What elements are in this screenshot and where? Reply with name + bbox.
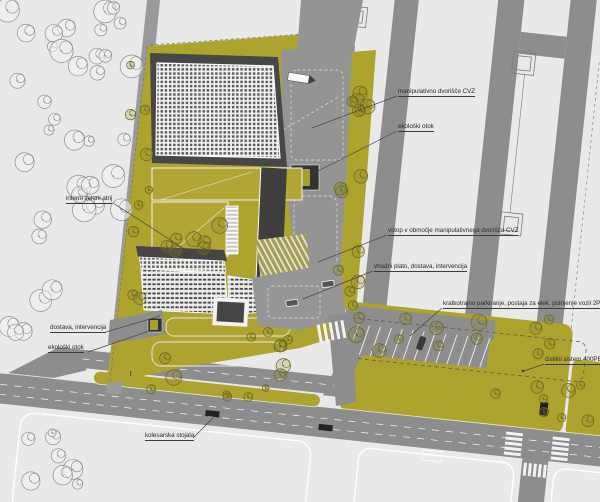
label-kratkotrajno-parkiranje: kratkotrajno parkiranje, postaja za elek… [443,300,600,309]
building-1-grid-roof [156,63,280,158]
site-plan-canvas: manipulativno dvorišče CVZ ekološki otok… [0,0,600,502]
label-manipulativno-dvorisce: manipulativno dvorišče CVZ [398,88,475,97]
label-dostava-intervencija: dostava, intervencija [50,324,106,333]
site-plan-drawing [0,0,600,502]
car-symbol [322,280,335,288]
building-2-entrance [212,297,248,327]
label-cistilni-sistem: čistilni sistem 400PE [545,356,600,365]
building-production-hall [150,53,287,167]
label-interni-zeleni-atrij: interni zeleni atrij [66,195,112,204]
label-vhodni-plato: vhodni plato, dostava, intervencija [374,263,467,272]
project-site [106,0,376,406]
eco-island-symbol [148,318,162,332]
leader-dot [522,370,525,373]
skylight-strip [226,206,238,254]
label-ekoloski-otok-left: ekološki otok [48,344,84,353]
label-kolesarska-stojala: kolesarska stojala [145,432,194,441]
label-ekoloski-otok-right: ekološki otok [398,123,434,132]
label-vstop-v-obmocje: vstop v območje manipulativnega dvorišča… [388,227,518,236]
lane-tick [130,371,131,376]
car-symbol [286,299,299,307]
